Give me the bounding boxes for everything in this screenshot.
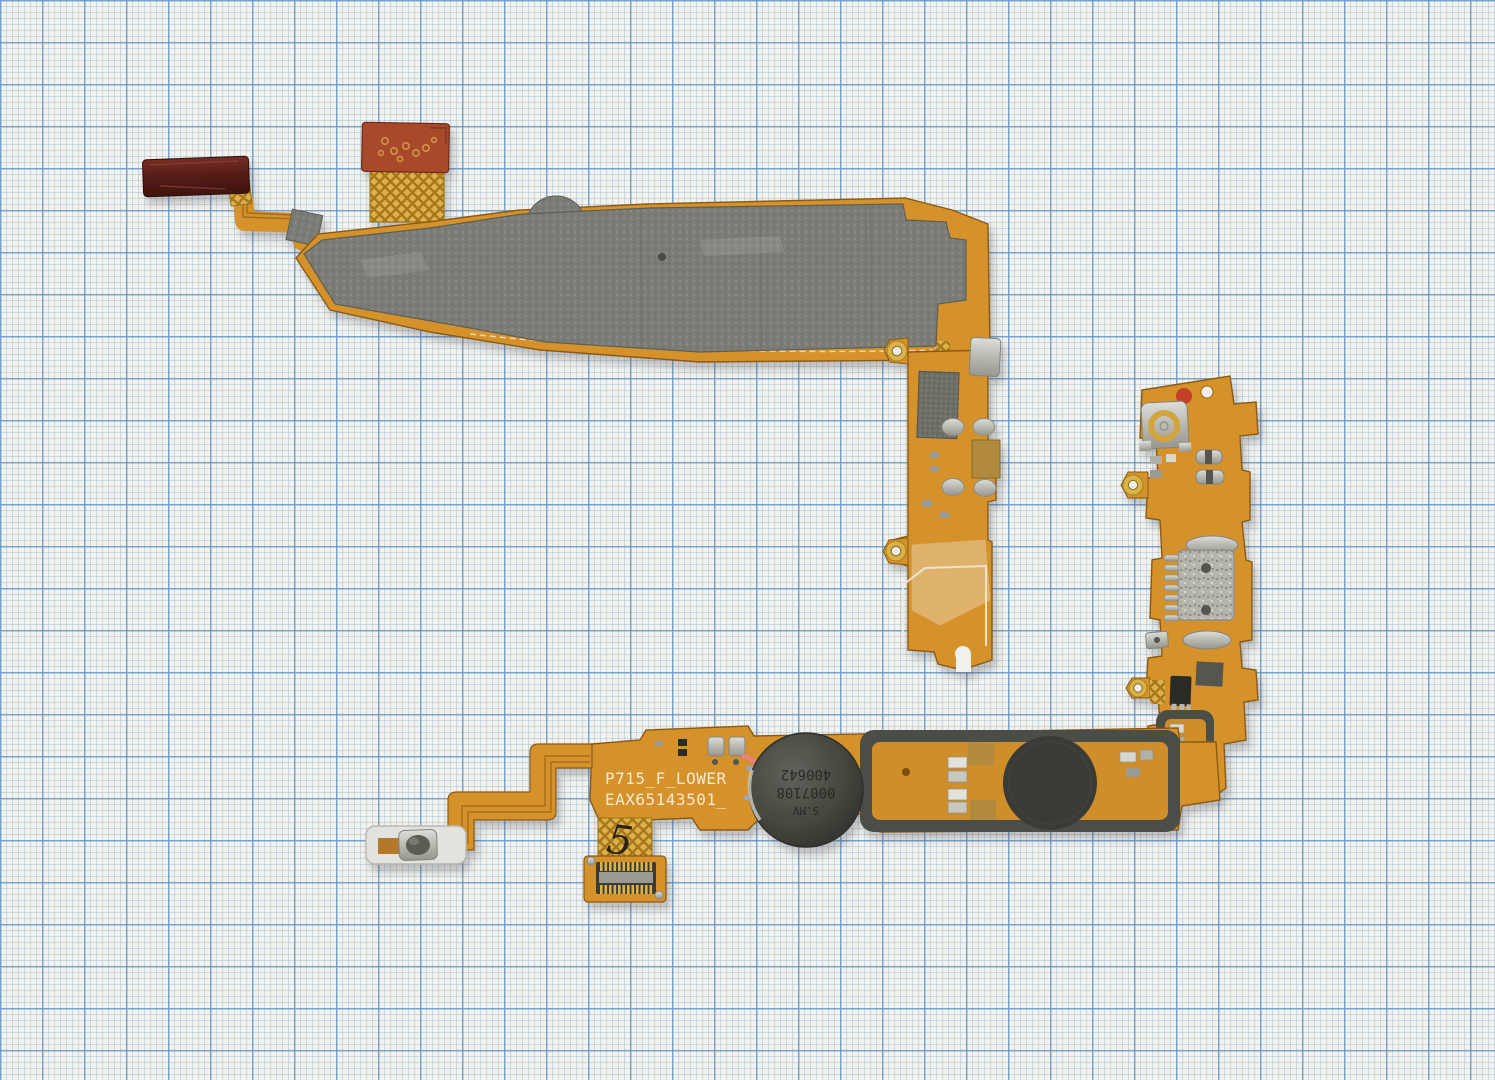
flex-cable-photo: P715_F_LOWER EAX65143501_ [0, 0, 1495, 1080]
shield-hole [658, 253, 666, 261]
copper-pad [972, 440, 1000, 478]
side-key-button-flex [366, 826, 466, 864]
vibration-motor: S.MV 0007108 400642 [749, 733, 863, 847]
motor-mark-line1: S.MV [792, 804, 819, 817]
bottom-board: P715_F_LOWER EAX65143501_ [590, 726, 1220, 847]
hatch-bit [1150, 680, 1165, 704]
silkscreen-line2: EAX65143501_ [605, 790, 727, 809]
crosshatch-band [370, 166, 444, 222]
gold-eyelet-bottom [1126, 678, 1150, 698]
top-middle-branch [362, 122, 450, 222]
terracotta-flex-pad [362, 122, 450, 173]
coax-antenna-connector [1137, 401, 1192, 455]
via-dot [902, 768, 910, 776]
usb-pins [1164, 555, 1179, 621]
black-transistor [1169, 676, 1191, 711]
mount-hole [1201, 386, 1213, 398]
flex-assembly: P715_F_LOWER EAX65143501_ [142, 122, 1258, 902]
motor-mark-line3: 400642 [781, 766, 832, 782]
metal-dome-button [398, 829, 437, 860]
silkscreen-line1: P715_F_LOWER [605, 769, 727, 788]
connector-branch: 5 [584, 816, 666, 902]
side-key-branch [366, 744, 592, 864]
gold-eyelet-right [1121, 472, 1148, 498]
bottom-notch-slot [956, 655, 971, 672]
top-left-branch [142, 156, 334, 246]
copper-pad-top [968, 743, 995, 766]
speaker-contact-disc [1003, 736, 1097, 830]
gasket-bottom [860, 730, 1180, 832]
screw-dot-1 [587, 857, 595, 865]
s-curve-flex [448, 744, 592, 850]
mic-port [1154, 637, 1160, 643]
dark-pad [1195, 661, 1223, 686]
gold-eyelet-mid [883, 538, 908, 565]
motor-mark-line2: 0007108 [776, 784, 835, 800]
graph-paper-background: P715_F_LOWER EAX65143501_ [0, 0, 1495, 1080]
copper-pad-bottom [970, 800, 996, 820]
microphone-block [969, 337, 1001, 377]
board-to-board-connector [587, 857, 663, 899]
center-strip [883, 337, 1001, 672]
screw-dot-2 [655, 891, 663, 899]
